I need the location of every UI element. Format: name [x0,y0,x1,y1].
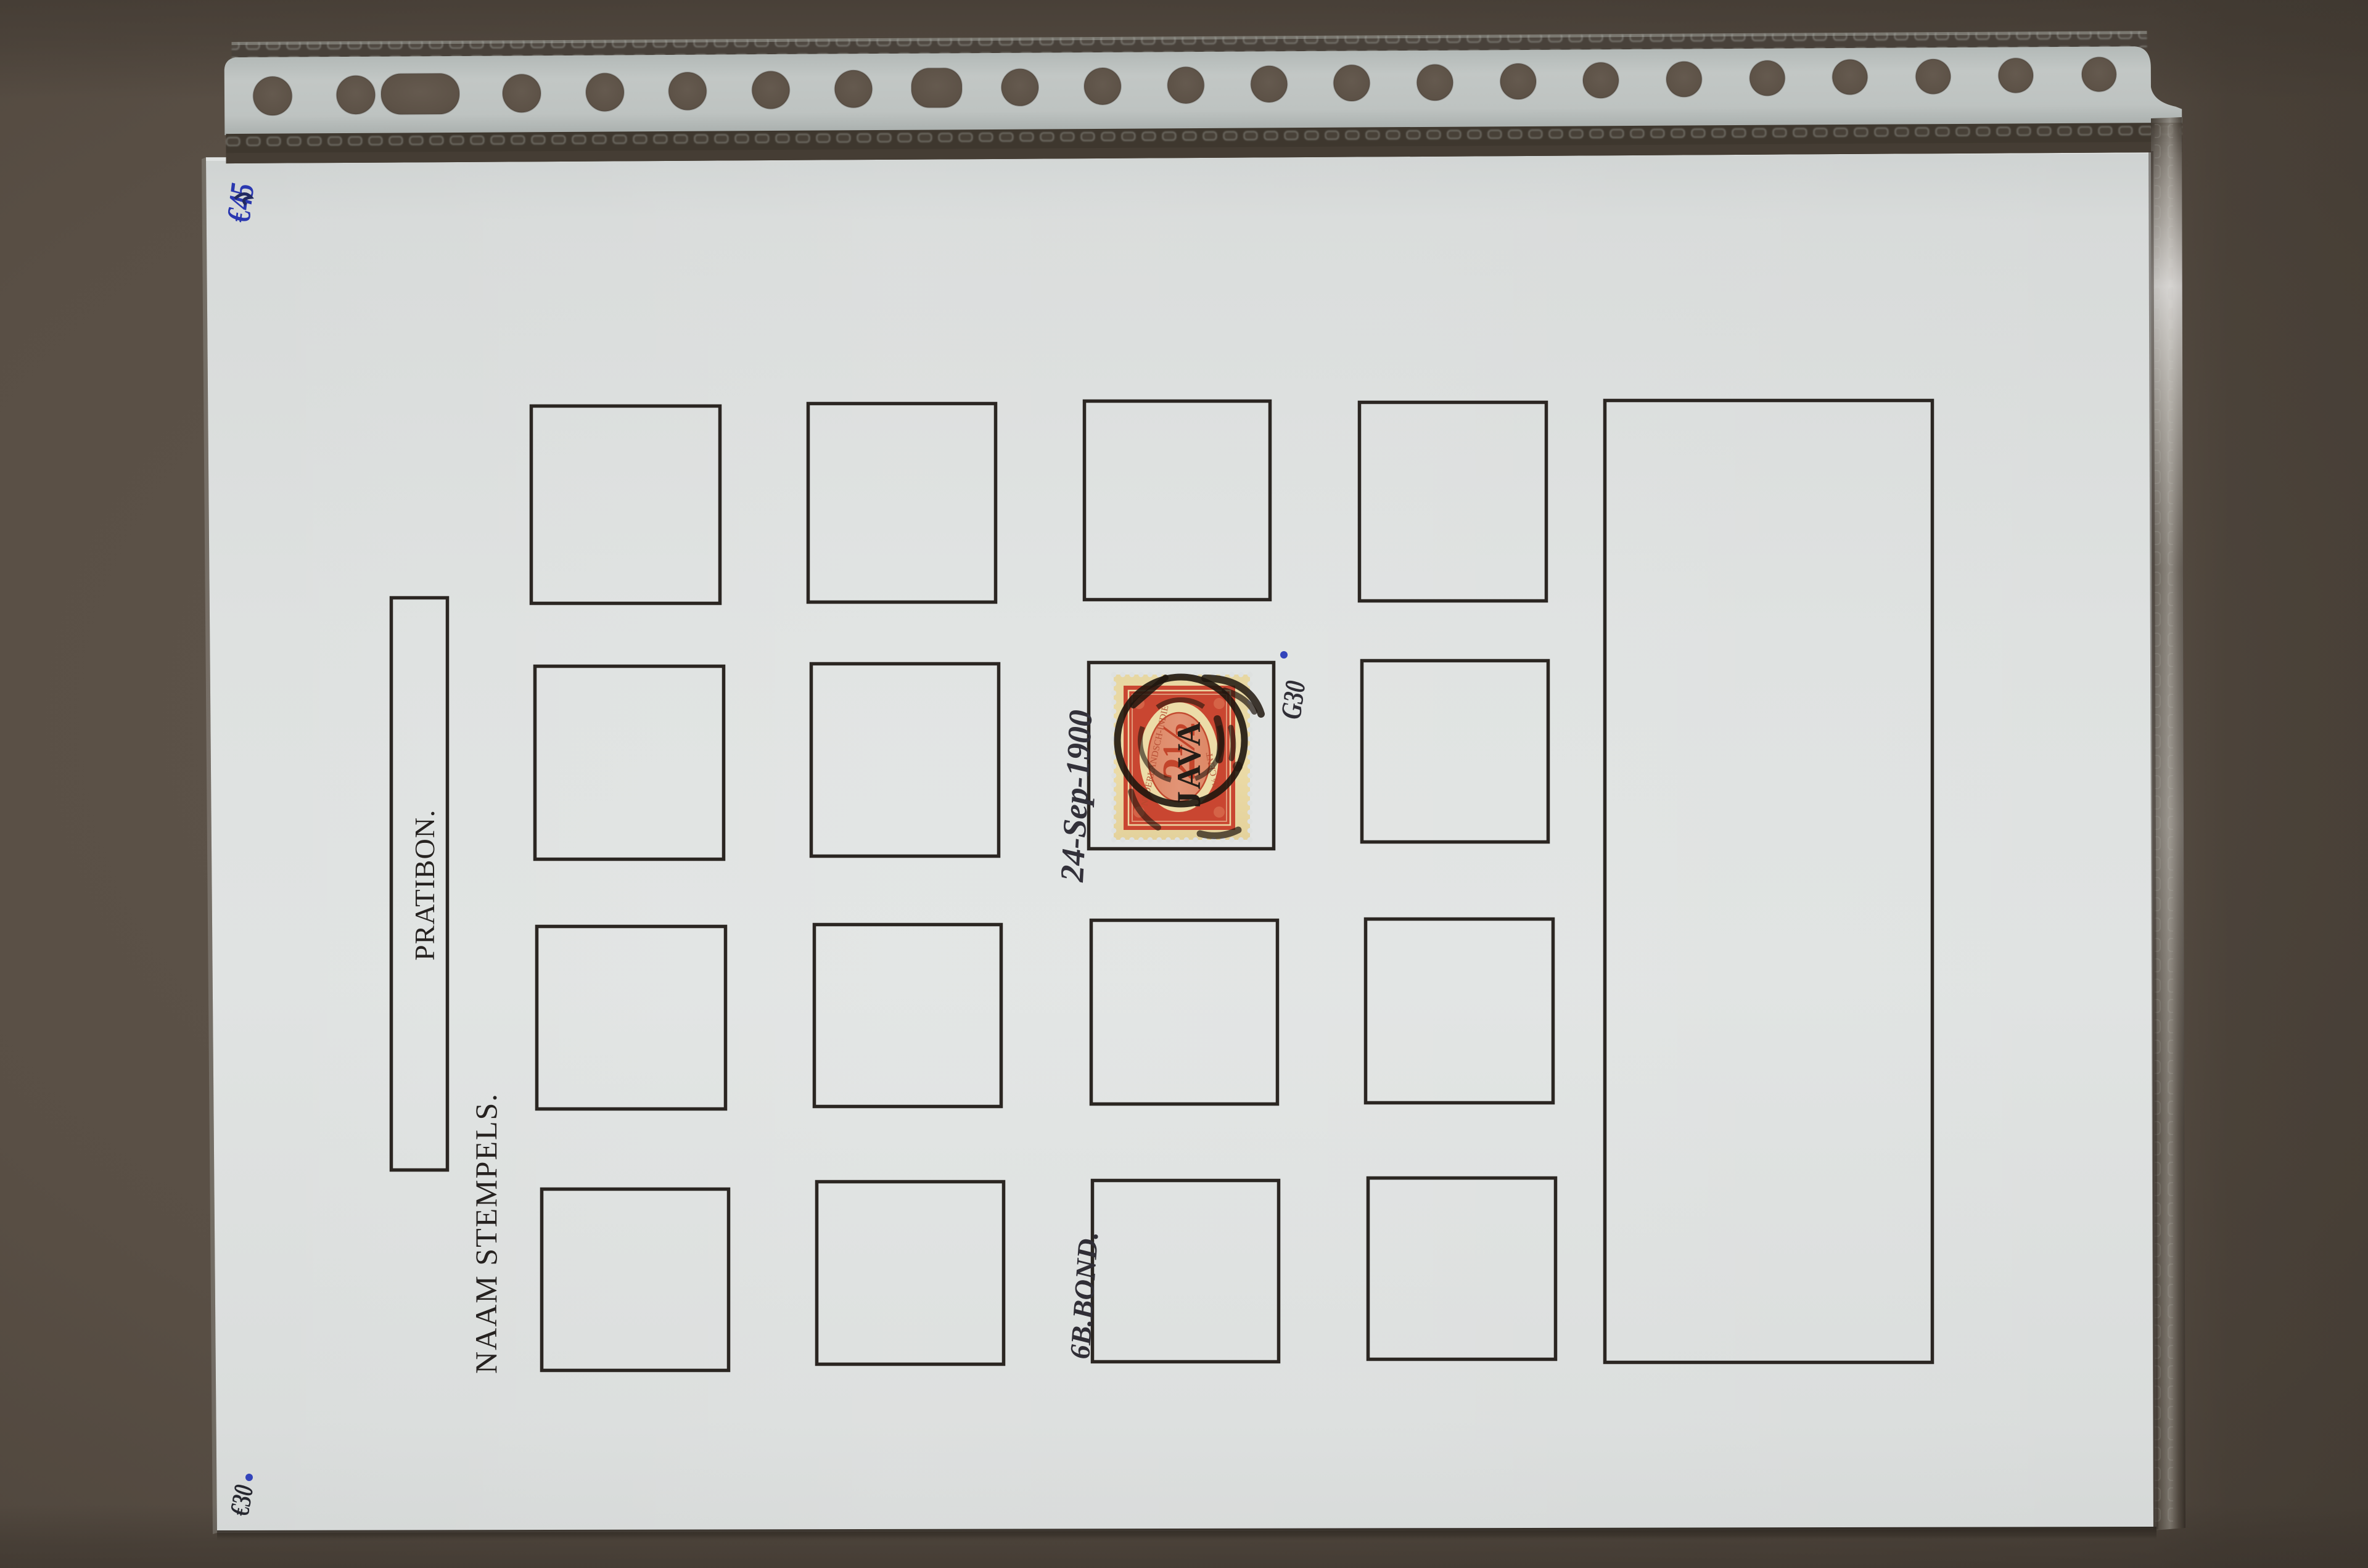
svg-text:G30: G30 [1275,679,1312,721]
svg-text:NAAM STEMPELS.: NAAM STEMPELS. [469,1093,503,1374]
svg-text:€45: €45 [220,181,261,225]
svg-text:PRATIBON.: PRATIBON. [409,810,440,961]
svg-text:JAVA: JAVA [1170,720,1207,808]
svg-text:€30: €30 [224,1483,260,1519]
